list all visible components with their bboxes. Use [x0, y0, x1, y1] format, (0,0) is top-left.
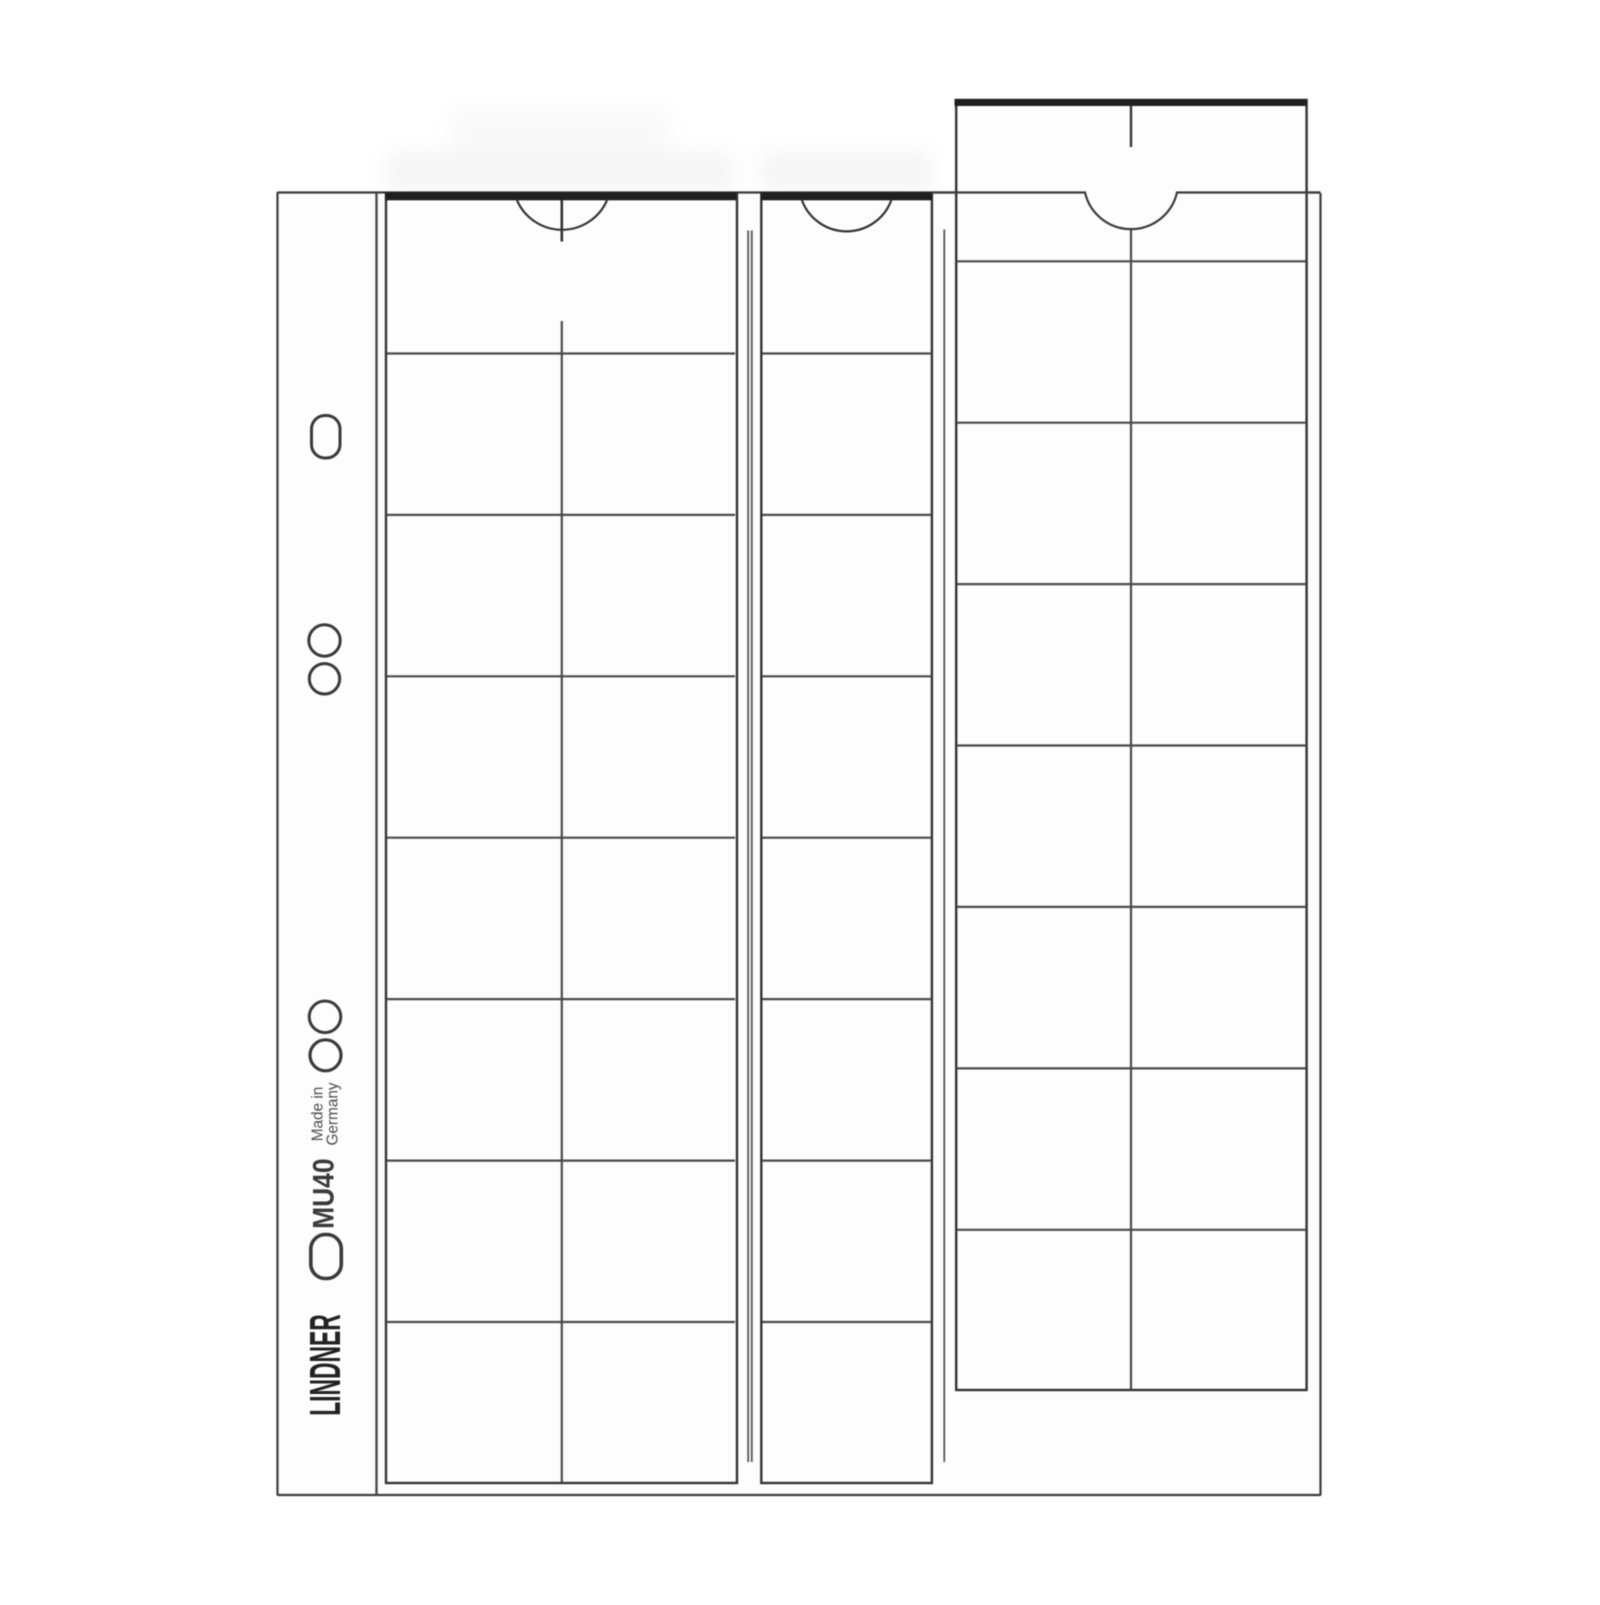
svg-text:Germany: Germany — [324, 1082, 341, 1145]
svg-text:LINDNER: LINDNER — [301, 1314, 350, 1416]
svg-text:MU40: MU40 — [306, 1158, 340, 1228]
